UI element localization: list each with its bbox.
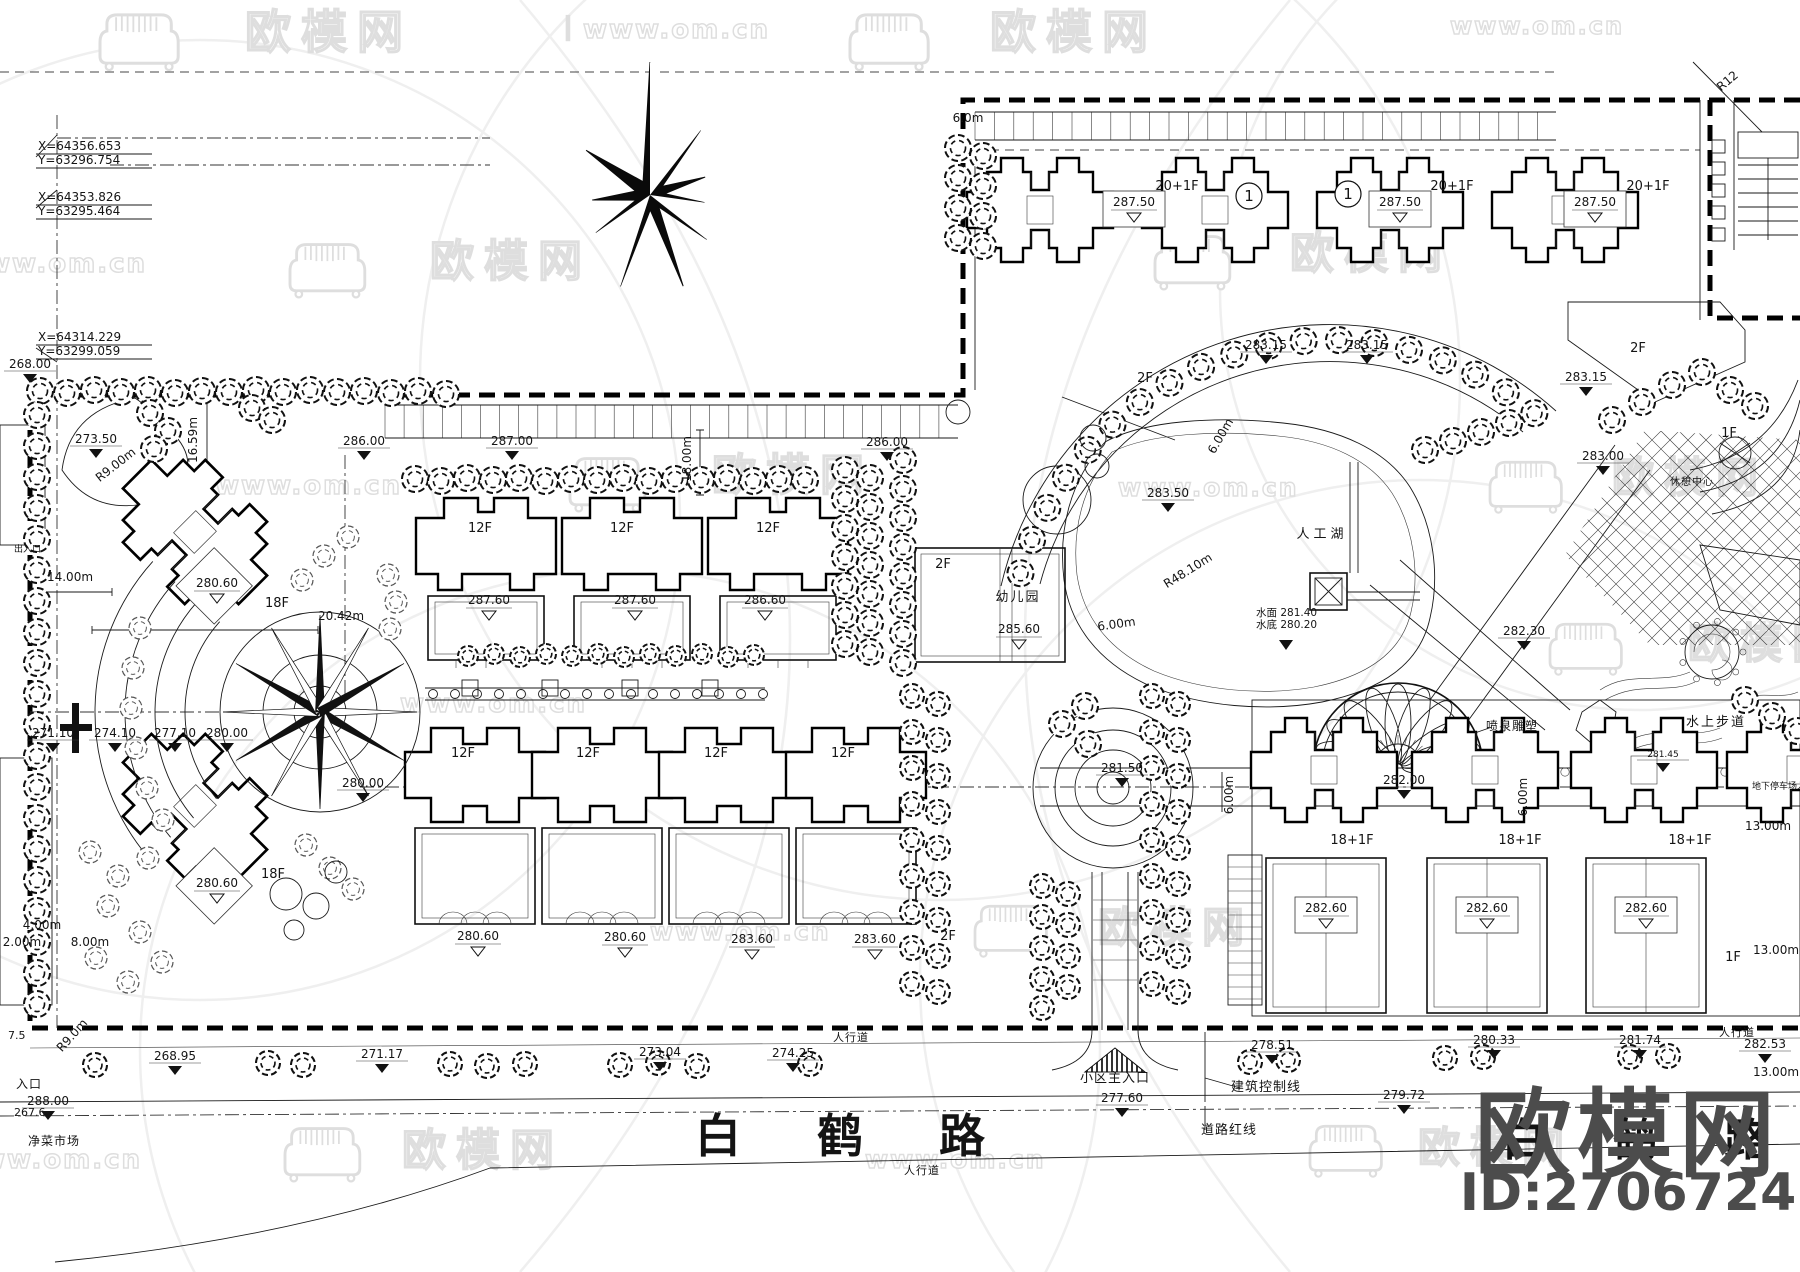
floor-count-label: 12F bbox=[610, 521, 634, 536]
ffl-triangle-icon bbox=[758, 611, 772, 620]
tree-icon bbox=[890, 505, 916, 531]
spot-elevation-triangle-icon bbox=[1115, 1108, 1129, 1117]
floor-count-label: 18+1F bbox=[1498, 833, 1541, 848]
dimension-label: 6.00m bbox=[1096, 614, 1136, 633]
tree-icon bbox=[1462, 362, 1488, 388]
logo-block: 白 鹤 路 白 鹤 路 欧模网 ID:2706724 bbox=[695, 1079, 1796, 1223]
ffl-triangle-icon bbox=[628, 611, 642, 620]
tree-icon bbox=[85, 947, 107, 969]
tree-icon bbox=[857, 465, 883, 491]
tree-icon bbox=[1099, 412, 1125, 438]
tree-icon bbox=[24, 619, 50, 645]
tree-icon bbox=[832, 515, 858, 541]
tree-icon bbox=[1412, 437, 1438, 463]
tree-icon bbox=[588, 644, 608, 664]
tree-icon bbox=[136, 777, 158, 799]
residential-site-plan-drawing: 欧模网丨www.om.cn欧模网www.om.cnwww.om.cn欧模网欧模网… bbox=[0, 0, 1800, 1272]
spot-elevation: 268.95 bbox=[154, 1049, 196, 1063]
spot-elevation: 277.10 bbox=[154, 726, 196, 740]
tree-icon bbox=[1140, 864, 1164, 888]
place-label: 小区主入口 bbox=[1080, 1071, 1150, 1086]
place-label: 净菜市场 bbox=[28, 1133, 80, 1148]
spot-elevation-triangle-icon bbox=[89, 449, 103, 458]
tree-icon bbox=[900, 684, 924, 708]
tree-icon bbox=[24, 867, 50, 893]
tree-icon bbox=[377, 564, 399, 586]
tree-icon bbox=[1056, 975, 1080, 999]
tree-icon bbox=[297, 377, 323, 403]
place-label: 人工湖 bbox=[1296, 527, 1347, 542]
tree-icon bbox=[926, 692, 950, 716]
tree-icon bbox=[1742, 393, 1768, 419]
tree-icon bbox=[945, 135, 971, 161]
spot-elevation-triangle-icon bbox=[356, 793, 370, 802]
tree-icon bbox=[1656, 1044, 1680, 1068]
floor-count-label: 1F bbox=[1721, 426, 1737, 441]
spot-elevation: 277.60 bbox=[1101, 1091, 1143, 1105]
coordinate-x: X=64314.229 bbox=[38, 330, 121, 344]
floor-elevation: 280.60 bbox=[457, 929, 499, 943]
tree-icon bbox=[351, 378, 377, 404]
tree-icon bbox=[1759, 703, 1785, 729]
tree-icon bbox=[428, 468, 454, 494]
tree-icon bbox=[1166, 980, 1190, 1004]
place-label: 道路红线 bbox=[1201, 1122, 1257, 1138]
tree-icon bbox=[766, 466, 792, 492]
tree-icon bbox=[970, 173, 996, 199]
floor-elevation: 283.60 bbox=[731, 932, 773, 946]
ffl-triangle-icon bbox=[745, 950, 759, 959]
tree-icon bbox=[342, 878, 364, 900]
unit-number: 1 bbox=[1244, 187, 1254, 205]
ffl-triangle-icon bbox=[618, 948, 632, 957]
tree-icon bbox=[1732, 687, 1758, 713]
watermark-text: 欧模网 bbox=[402, 1125, 564, 1176]
tree-icon bbox=[24, 774, 50, 800]
tree-icon bbox=[1659, 372, 1685, 398]
spot-elevation: 282.53 bbox=[1744, 1037, 1786, 1051]
tree-icon bbox=[137, 847, 159, 869]
floor-elevation: 287.50 bbox=[1574, 195, 1616, 209]
tree-icon bbox=[832, 573, 858, 599]
tree-icon bbox=[1618, 1045, 1642, 1069]
spot-elevation: 271.17 bbox=[361, 1047, 403, 1061]
tree-icon bbox=[480, 467, 506, 493]
tree-icon bbox=[926, 836, 950, 860]
tree-icon bbox=[857, 639, 883, 665]
spot-elevation: 280.00 bbox=[206, 726, 248, 740]
tree-icon bbox=[1221, 342, 1247, 368]
tree-icon bbox=[558, 466, 584, 492]
tree-icon bbox=[1030, 996, 1054, 1020]
floor-count-label: 2F bbox=[940, 929, 956, 944]
dimension-label: 13.00m bbox=[1753, 943, 1799, 957]
tree-icon bbox=[666, 646, 686, 666]
tree-icon bbox=[792, 467, 818, 493]
floor-count-label: 12F bbox=[576, 746, 600, 761]
floor-elevation: 282.60 bbox=[1466, 901, 1508, 915]
tree-icon bbox=[24, 991, 50, 1017]
tree-icon bbox=[24, 495, 50, 521]
site-boundary-ne bbox=[1710, 100, 1800, 318]
floor-count-label: 1F bbox=[1725, 950, 1741, 965]
floor-elevation: 282.60 bbox=[1305, 901, 1347, 915]
tree-icon bbox=[378, 380, 404, 406]
tree-icon bbox=[740, 468, 766, 494]
dimension-label: 6.0m bbox=[953, 111, 984, 125]
place-label: 水上步道 bbox=[1686, 715, 1746, 730]
spot-elevation: 281.50 bbox=[1101, 761, 1143, 775]
spot-elevation-triangle-icon bbox=[1397, 1105, 1411, 1114]
floor-elevation: 282.60 bbox=[1625, 901, 1667, 915]
spot-elevation: 283.50 bbox=[1147, 486, 1189, 500]
dimension-label: 6.00m bbox=[1222, 776, 1236, 814]
tree-icon bbox=[900, 792, 924, 816]
tree-icon bbox=[1034, 495, 1060, 521]
coordinate-x: X=64353.826 bbox=[38, 190, 121, 204]
dimension-label: 4.00m bbox=[23, 918, 61, 932]
tree-icon bbox=[610, 465, 636, 491]
tree-icon bbox=[832, 457, 858, 483]
tree-icon bbox=[120, 697, 142, 719]
tree-icon bbox=[433, 381, 459, 407]
unit-number: 1 bbox=[1343, 185, 1353, 203]
tree-icon bbox=[1056, 944, 1080, 968]
tree-icon bbox=[890, 447, 916, 473]
floor-elevation: 280.60 bbox=[604, 930, 646, 944]
floor-count-label: 12F bbox=[756, 521, 780, 536]
tree-outline-icon bbox=[303, 893, 329, 919]
tree-icon bbox=[107, 865, 129, 887]
tree-icon bbox=[97, 895, 119, 917]
ffl-triangle-icon bbox=[868, 950, 882, 959]
tree-icon bbox=[1166, 692, 1190, 716]
floor-count-label: 12F bbox=[451, 746, 475, 761]
floor-count-label: 18+1F bbox=[1330, 833, 1373, 848]
tree-icon bbox=[270, 379, 296, 405]
tree-icon bbox=[1166, 872, 1190, 896]
spot-elevation: 273.50 bbox=[75, 432, 117, 446]
tree-icon bbox=[1030, 967, 1054, 991]
tree-icon bbox=[1140, 900, 1164, 924]
tree-icon bbox=[900, 864, 924, 888]
tree-icon bbox=[1030, 874, 1054, 898]
tree-icon bbox=[438, 1052, 462, 1076]
tree-outline-icon bbox=[946, 400, 970, 424]
spot-elevation: 286.00 bbox=[343, 434, 385, 448]
floor-elevation: 287.60 bbox=[468, 593, 510, 607]
tree-icon bbox=[1053, 465, 1079, 491]
floor-elevation: 287.50 bbox=[1113, 195, 1155, 209]
tree-icon bbox=[1056, 913, 1080, 937]
tree-icon bbox=[890, 621, 916, 647]
tree-icon bbox=[83, 1053, 107, 1077]
spot-elevation-triangle-icon bbox=[1360, 355, 1374, 364]
spot-elevation-triangle-icon bbox=[168, 1066, 182, 1075]
place-label: 入口 bbox=[16, 1077, 42, 1091]
tree-icon bbox=[1019, 527, 1045, 553]
tree-icon bbox=[475, 1054, 499, 1078]
tree-icon bbox=[24, 960, 50, 986]
tree-icon bbox=[24, 805, 50, 831]
tree-icon bbox=[1430, 347, 1456, 373]
floor-count-label: 20+1F bbox=[1626, 179, 1669, 194]
tree-icon bbox=[945, 195, 971, 221]
watermark-text: www.om.cn bbox=[1450, 12, 1624, 40]
floor-count-label: 2F bbox=[1630, 341, 1646, 356]
spot-elevation-triangle-icon bbox=[1579, 387, 1593, 396]
tree-icon bbox=[614, 647, 634, 667]
spot-elevation: 280.33 bbox=[1473, 1033, 1515, 1047]
spot-elevation: 281.45 bbox=[1647, 750, 1679, 760]
tree-icon bbox=[532, 468, 558, 494]
tree-icon bbox=[1493, 379, 1519, 405]
tree-icon bbox=[313, 545, 335, 567]
tree-icon bbox=[1521, 400, 1547, 426]
coordinate-y: Y=63295.464 bbox=[37, 204, 120, 218]
tree-icon bbox=[857, 494, 883, 520]
tree-icon bbox=[1784, 718, 1800, 744]
tree-icon bbox=[857, 610, 883, 636]
tree-icon bbox=[718, 647, 738, 667]
tree-icon bbox=[1140, 936, 1164, 960]
dimension-label: 14.00m bbox=[47, 570, 93, 584]
place-label: 人行道 bbox=[904, 1163, 940, 1177]
tree-icon bbox=[319, 857, 341, 879]
tree-icon bbox=[24, 588, 50, 614]
coordinate-y: Y=63296.754 bbox=[37, 153, 120, 167]
floor-count-label: 2F bbox=[1137, 371, 1153, 386]
tree-icon bbox=[926, 800, 950, 824]
spot-elevation: 278.51 bbox=[1251, 1038, 1293, 1052]
floor-count-label: 20+1F bbox=[1430, 179, 1473, 194]
tree-icon bbox=[1629, 389, 1655, 415]
spot-elevation: 286.00 bbox=[866, 435, 908, 449]
floor-count-label: 18+1F bbox=[1668, 833, 1711, 848]
tree-icon bbox=[536, 644, 556, 664]
tree-icon bbox=[1166, 908, 1190, 932]
tree-icon bbox=[970, 233, 996, 259]
tree-icon bbox=[24, 402, 50, 428]
tree-icon bbox=[890, 592, 916, 618]
place-label: 人行道 bbox=[1719, 1025, 1755, 1039]
watermark-text: 欧模网 bbox=[245, 5, 413, 59]
floor-count-label: 20+1F bbox=[1155, 179, 1198, 194]
spot-elevation-triangle-icon bbox=[505, 451, 519, 460]
tree-icon bbox=[27, 378, 53, 404]
tree-icon bbox=[484, 644, 504, 664]
spot-elevation-triangle-icon bbox=[1596, 466, 1610, 475]
dimension-label: 6.00m bbox=[1516, 778, 1530, 816]
tree-icon bbox=[640, 644, 660, 664]
tree-icon bbox=[1140, 684, 1164, 708]
tree-icon bbox=[79, 841, 101, 863]
tree-icon bbox=[926, 764, 950, 788]
tree-icon bbox=[141, 436, 167, 462]
tree-icon bbox=[295, 834, 317, 856]
spot-elevation: 274.25 bbox=[772, 1046, 814, 1060]
tree-icon bbox=[216, 379, 242, 405]
tree-icon bbox=[24, 464, 50, 490]
dimension-label: 13.00m bbox=[1753, 1065, 1799, 1079]
tree-icon bbox=[291, 1053, 315, 1077]
tree-icon bbox=[1471, 1045, 1495, 1069]
tree-icon bbox=[900, 756, 924, 780]
tree-icon bbox=[379, 618, 401, 640]
tree-icon bbox=[1140, 972, 1164, 996]
tree-icon bbox=[1468, 419, 1494, 445]
watermark-text: www.om.cn bbox=[0, 249, 147, 279]
floor-elevation: 285.60 bbox=[998, 622, 1040, 636]
tree-icon bbox=[692, 644, 712, 664]
floor-count-label: 2F bbox=[935, 557, 951, 572]
tree-icon bbox=[714, 465, 740, 491]
dimension-label: 20.42m bbox=[318, 609, 364, 623]
tree-icon bbox=[1140, 720, 1164, 744]
spot-elevation: 273.04 bbox=[639, 1045, 681, 1059]
spot-elevation: 282.30 bbox=[1503, 624, 1545, 638]
tree-icon bbox=[256, 1051, 280, 1075]
tree-icon bbox=[291, 569, 313, 591]
watermark-text: www.om.cn bbox=[400, 689, 587, 719]
tree-icon bbox=[506, 465, 532, 491]
tree-icon bbox=[81, 377, 107, 403]
watermark-text: www.om.cn bbox=[1118, 473, 1299, 502]
tree-icon bbox=[1188, 354, 1214, 380]
tree-icon bbox=[54, 380, 80, 406]
tree-icon bbox=[1166, 728, 1190, 752]
dimension-label: R48.10m bbox=[1161, 550, 1215, 591]
tree-icon bbox=[1127, 389, 1153, 415]
spot-elevation: 283.15 bbox=[1245, 338, 1287, 352]
tree-icon bbox=[1140, 756, 1164, 780]
spot-elevation: 287.00 bbox=[491, 434, 533, 448]
tree-icon bbox=[900, 972, 924, 996]
tree-icon bbox=[1166, 764, 1190, 788]
tree-icon bbox=[1166, 836, 1190, 860]
tree-icon bbox=[636, 468, 662, 494]
tree-icon bbox=[129, 617, 151, 639]
tree-icon bbox=[324, 379, 350, 405]
tree-icon bbox=[24, 836, 50, 862]
tree-icon bbox=[926, 872, 950, 896]
spot-elevation-triangle-icon bbox=[1161, 503, 1175, 512]
site-plan-screenshot: 欧模网丨www.om.cn欧模网www.om.cnwww.om.cn欧模网欧模网… bbox=[0, 0, 1800, 1272]
place-label: 喷泉雕塑 bbox=[1486, 718, 1538, 733]
tree-icon bbox=[857, 552, 883, 578]
coordinate-x: X=64356.653 bbox=[38, 139, 121, 153]
tree-icon bbox=[900, 900, 924, 924]
tree-icon bbox=[1140, 828, 1164, 852]
place-label: 幼儿园 bbox=[995, 590, 1040, 605]
dimension-label: R12 bbox=[1714, 68, 1741, 94]
place-label: 7.5 bbox=[8, 1029, 26, 1042]
tree-icon bbox=[259, 407, 285, 433]
tree-icon bbox=[402, 466, 428, 492]
watermark-text: www.om.cn bbox=[215, 471, 402, 501]
tree-icon bbox=[926, 728, 950, 752]
main-entrance-marker bbox=[1085, 1048, 1145, 1072]
tree-icon bbox=[1396, 337, 1422, 363]
tree-icon bbox=[24, 650, 50, 676]
tree-icon bbox=[1689, 359, 1715, 385]
tree-icon bbox=[454, 465, 480, 491]
tree-icon bbox=[24, 743, 50, 769]
tree-icon bbox=[890, 650, 916, 676]
spot-elevation: 283.15 bbox=[1565, 370, 1607, 384]
tree-icon bbox=[584, 467, 610, 493]
tree-icon bbox=[1056, 882, 1080, 906]
tree-icon bbox=[1166, 944, 1190, 968]
tree-icon bbox=[189, 378, 215, 404]
tree-icon bbox=[857, 581, 883, 607]
tree-icon bbox=[1717, 377, 1743, 403]
tree-outline-icon bbox=[284, 920, 304, 940]
spot-elevation: 274.10 bbox=[94, 726, 136, 740]
watermark-text: 欧模网 bbox=[430, 236, 592, 287]
tree-icon bbox=[945, 225, 971, 251]
artificial-lake bbox=[1063, 420, 1435, 707]
tree-icon bbox=[385, 591, 407, 613]
tree-icon bbox=[1007, 560, 1033, 586]
watermark-text: www.om.cn bbox=[0, 1145, 142, 1175]
tree-icon bbox=[151, 951, 173, 973]
floor-elevation: 287.50 bbox=[1379, 195, 1421, 209]
tree-icon bbox=[108, 379, 134, 405]
spot-elevation: 283.00 bbox=[1582, 449, 1624, 463]
water-bottom-level: 水底 280.20 bbox=[1256, 618, 1317, 631]
place-label: 地下停车场入口 bbox=[1752, 780, 1800, 792]
tree-icon bbox=[1049, 711, 1075, 737]
dimension-label: 16.59m bbox=[186, 417, 200, 463]
place-label: 267.6 bbox=[14, 1106, 46, 1119]
watermark-id: ID:2706724 bbox=[1460, 1163, 1797, 1223]
dimension-label: 13.00m bbox=[1745, 819, 1791, 833]
tree-icon bbox=[337, 526, 359, 548]
place-label: 出入口 bbox=[14, 543, 41, 555]
coordinate-y: Y=63299.059 bbox=[37, 344, 120, 358]
tree-icon bbox=[129, 921, 151, 943]
place-label: 人行道 bbox=[833, 1030, 869, 1044]
ffl-triangle-icon bbox=[471, 947, 485, 956]
spot-elevation-triangle-icon bbox=[108, 743, 122, 752]
floor-count-label: 12F bbox=[704, 746, 728, 761]
watermark-text: 丨www.om.cn bbox=[555, 15, 770, 45]
floor-elevation: 280.60 bbox=[196, 576, 238, 590]
spot-elevation-triangle-icon bbox=[1115, 778, 1129, 787]
tree-icon bbox=[1072, 693, 1098, 719]
tree-icon bbox=[1496, 410, 1522, 436]
road-name: 白 鹤 路 bbox=[695, 1109, 1015, 1163]
tree-icon bbox=[24, 433, 50, 459]
tree-icon bbox=[562, 646, 582, 666]
tree-icon bbox=[900, 720, 924, 744]
tree-icon bbox=[1030, 936, 1054, 960]
ffl-triangle-icon bbox=[482, 611, 496, 620]
tree-icon bbox=[832, 544, 858, 570]
spot-elevation-triangle-icon bbox=[1397, 790, 1411, 799]
dimension-label: 8.00m bbox=[71, 935, 109, 949]
tree-icon bbox=[832, 602, 858, 628]
tree-icon bbox=[890, 534, 916, 560]
tree-icon bbox=[1140, 792, 1164, 816]
tree-icon bbox=[900, 936, 924, 960]
tree-icon bbox=[458, 646, 478, 666]
spot-elevation-triangle-icon bbox=[1758, 1054, 1772, 1063]
tree-icon bbox=[1599, 407, 1625, 433]
tree-icon bbox=[890, 563, 916, 589]
tree-icon bbox=[1030, 905, 1054, 929]
